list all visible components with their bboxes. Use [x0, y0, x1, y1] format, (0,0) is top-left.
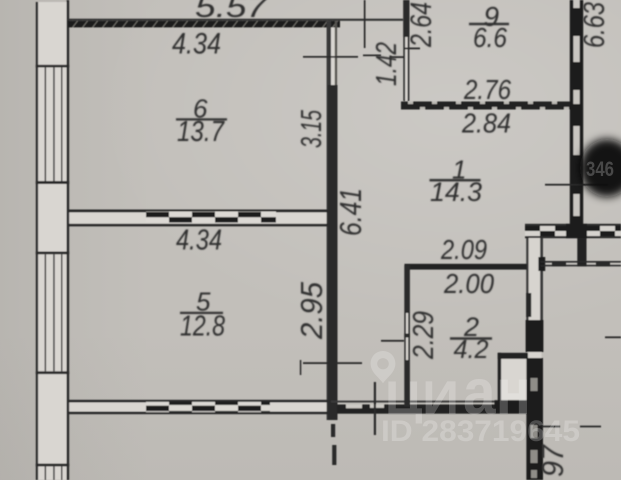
- svg-text:ID 283719645: ID 283719645: [381, 415, 580, 448]
- svg-text:2.64: 2.64: [405, 2, 438, 48]
- svg-text:12.8: 12.8: [180, 311, 225, 343]
- svg-text:97: 97: [535, 443, 570, 477]
- svg-text:6.6: 6.6: [473, 22, 507, 53]
- svg-text:6.41: 6.41: [333, 188, 368, 236]
- svg-text:2.00: 2.00: [443, 268, 494, 299]
- svg-text:2.95: 2.95: [294, 281, 329, 340]
- svg-text:2.09: 2.09: [440, 234, 487, 265]
- svg-text:346: 346: [586, 158, 614, 181]
- svg-text:14.3: 14.3: [430, 177, 482, 207]
- svg-text:4.34: 4.34: [172, 28, 221, 61]
- svg-text:3.15: 3.15: [296, 109, 328, 148]
- svg-text:13.7: 13.7: [177, 116, 226, 148]
- svg-text:6.63: 6.63: [578, 2, 611, 48]
- svg-text:2.84: 2.84: [461, 108, 511, 139]
- svg-text:2.29: 2.29: [408, 311, 440, 360]
- svg-text:2.76: 2.76: [463, 74, 511, 105]
- svg-text:4.34: 4.34: [176, 225, 222, 257]
- svg-text:5.57: 5.57: [195, 0, 269, 24]
- svg-text:1.42: 1.42: [371, 42, 403, 86]
